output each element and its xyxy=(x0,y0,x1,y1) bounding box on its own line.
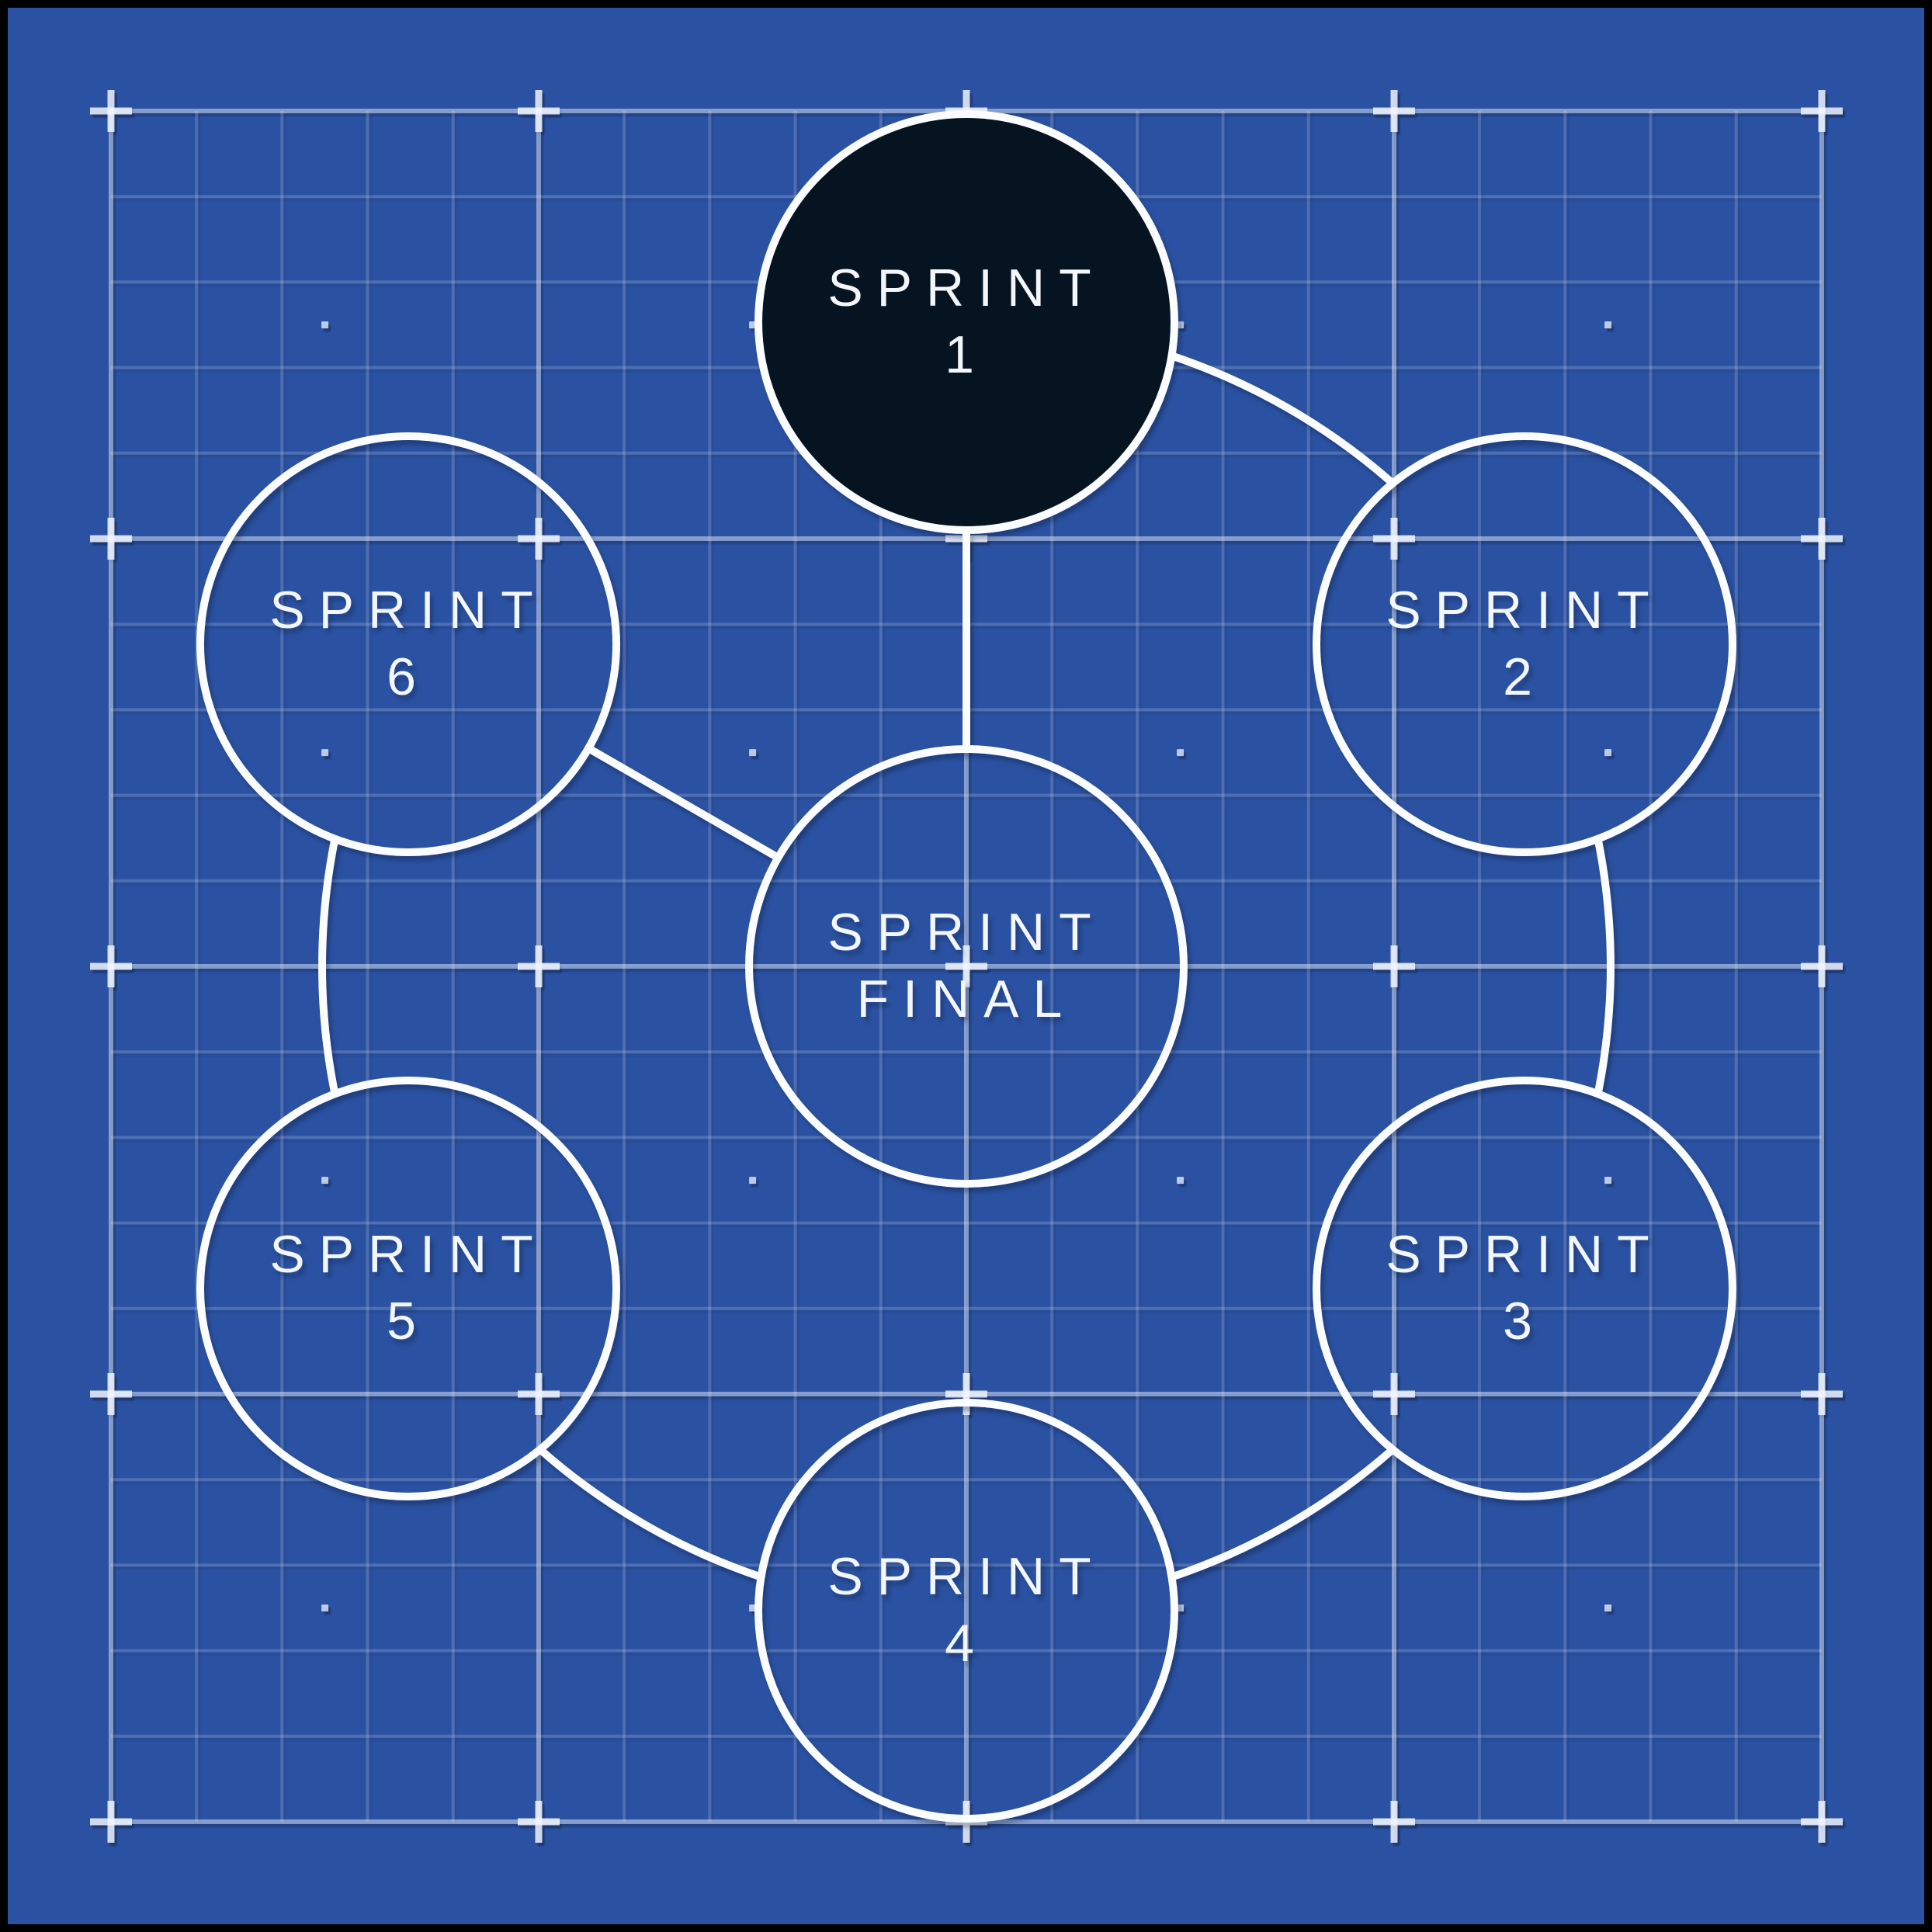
grid-center-dot xyxy=(321,1177,328,1184)
node-sprint-1: SPRINT1 xyxy=(758,114,1174,530)
node-label-sprint-1-line2: 1 xyxy=(945,325,988,384)
node-label-final-line2: FINAL xyxy=(857,969,1077,1028)
grid-center-dot xyxy=(749,1177,756,1184)
node-label-sprint-6-line1: SPRINT xyxy=(269,581,546,640)
grid-center-dot xyxy=(1604,749,1611,756)
node-label-sprint-1-line1: SPRINT xyxy=(827,258,1105,317)
node-label-sprint-4-line2: 4 xyxy=(945,1614,988,1673)
grid-center-dot xyxy=(1177,749,1184,756)
grid-center-dot xyxy=(1604,1177,1611,1184)
node-label-sprint-6-line2: 6 xyxy=(387,647,430,706)
node-label-final-line1: SPRINT xyxy=(827,903,1105,962)
node-label-sprint-4-line1: SPRINT xyxy=(827,1547,1105,1606)
grid-center-dot xyxy=(321,1604,328,1611)
node-label-sprint-5-line1: SPRINT xyxy=(269,1225,546,1284)
sprint-roadmap-diagram: SPRINT1SPRINT2SPRINT3SPRINT4SPRINT5SPRIN… xyxy=(0,0,1932,1932)
grid-center-dot xyxy=(321,321,328,328)
node-label-sprint-3-line1: SPRINT xyxy=(1386,1225,1663,1284)
grid-center-dot xyxy=(1177,1177,1184,1184)
grid-center-dot xyxy=(1604,321,1611,328)
node-label-sprint-2-line1: SPRINT xyxy=(1386,581,1663,640)
node-label-sprint-2-line2: 2 xyxy=(1503,647,1546,706)
blueprint-poster: SPRINT1SPRINT2SPRINT3SPRINT4SPRINT5SPRIN… xyxy=(0,0,1932,1932)
grid-center-dot xyxy=(749,749,756,756)
node-label-sprint-5-line2: 5 xyxy=(387,1292,430,1351)
node-circle-sprint-1 xyxy=(758,114,1174,530)
grid-center-dot xyxy=(1604,1604,1611,1611)
grid-center-dot xyxy=(321,749,328,756)
node-label-sprint-3-line2: 3 xyxy=(1503,1292,1546,1351)
